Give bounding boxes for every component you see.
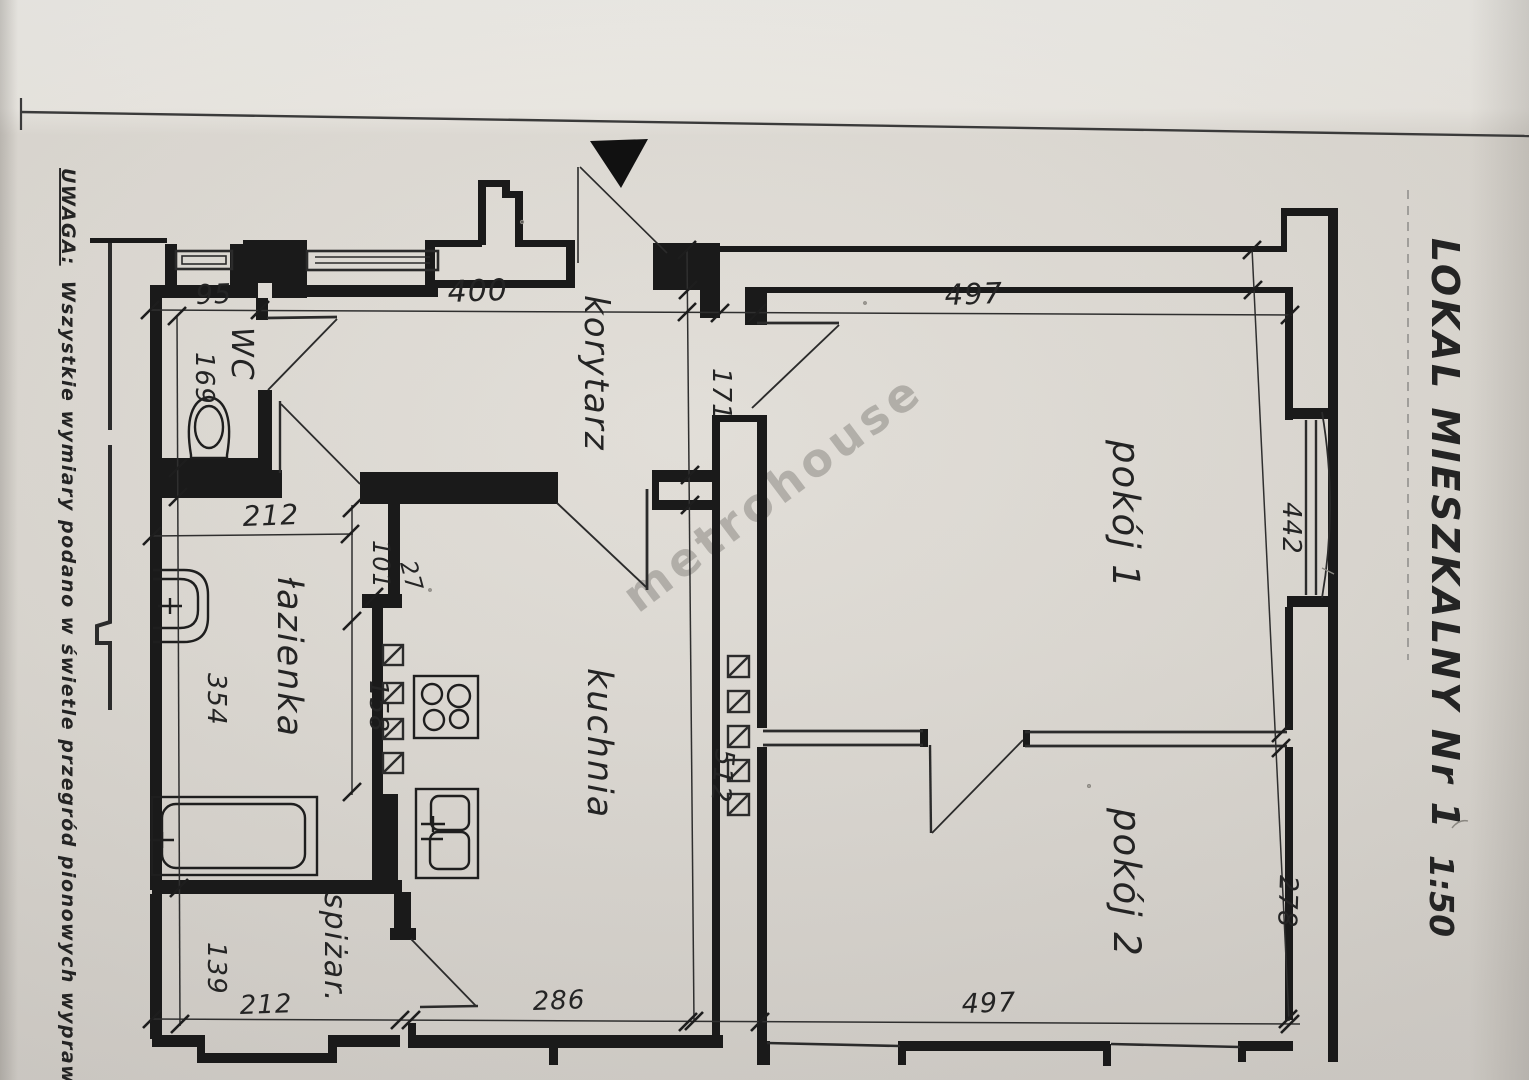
dim-spizar-depth: 139 [201,942,231,995]
room-label-wc: WC [224,327,259,382]
lazienka-door-icon [280,401,360,484]
floor-plan-drawing: metrohouse [0,0,1529,1080]
pokoj2-window-a-icon [767,1043,900,1046]
kitchen-sink-icon [416,789,478,878]
room-label-pokoj1: pokój 1 [1104,439,1147,590]
sheet-note: UWAGA: Wszystkie wymiary podano w świetl… [57,168,79,1080]
dim-wall-101: 101 [367,540,395,589]
dim-korytarz-depth: 171 [706,368,736,421]
wc-door-icon [267,317,337,390]
dim-lazienka-width: 212 [242,498,300,533]
dim-spizar-width: 212 [239,989,293,1021]
room-label-kuchnia: kuchnia [579,668,619,819]
dim-korytarz-width: 400 [447,273,508,310]
room-label-spizar: spiżar. [317,893,352,1003]
note-label: UWAGA: [57,168,79,266]
wall-notch [258,283,272,298]
room-label-pokoj2: pokój 2 [1105,807,1148,958]
dim-pokoj1-width-top: 497 [944,276,1004,312]
dim-pokoj2-depth: 278 [1271,875,1303,929]
kuchnia-door-icon [557,489,647,590]
dim-pokoj2-width: 497 [961,987,1017,1020]
adjacent-structure-outline [90,240,110,710]
dim-kuchnia-width: 286 [532,985,586,1017]
korytarz-window-icon [307,251,438,270]
pokoj1-door-icon [752,323,839,408]
spizar-door-icon [411,939,478,1007]
watermark-text: metrohouse [612,362,933,622]
room-label-korytarz: korytarz [576,295,616,452]
dim-kuchnia-depth: 512 [704,747,740,804]
pokoj2-door-icon [930,740,1023,833]
sheet-title: LOKAL MIESZKALNY Nr 1 [1423,238,1467,831]
toilet-icon [189,397,229,458]
scanned-floor-plan-sheet: metrohouse [0,0,1529,1080]
note-body: Wszystkie wymiary podano w świetle przeg… [57,273,79,1080]
bathtub-icon [150,797,317,875]
dim-wall-158: 158 [363,680,393,733]
stove-icon [414,676,478,738]
dim-wc-depth: 169 [189,352,219,405]
room-label-lazienka: łazienka [269,577,309,738]
dim-lazienka-depth: 354 [201,673,231,726]
sheet-scale: 1:50 [1422,855,1461,937]
room-labels: WC korytarz pokój 1 łazienka kuchnia pok… [224,295,1148,1003]
wc-window-icon [176,251,232,269]
dim-pokoj1-depth: 442 [1276,502,1306,555]
dim-wc-width: 95 [195,279,232,311]
pokoj2-window-b-icon [1111,1044,1240,1047]
